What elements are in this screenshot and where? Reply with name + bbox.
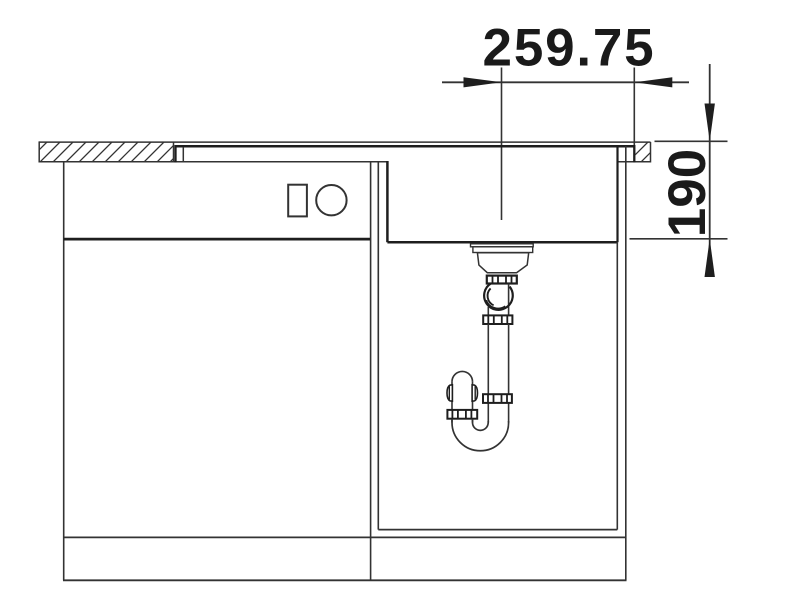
- svg-text:259.75: 259.75: [483, 18, 656, 77]
- svg-text:190: 190: [658, 149, 717, 237]
